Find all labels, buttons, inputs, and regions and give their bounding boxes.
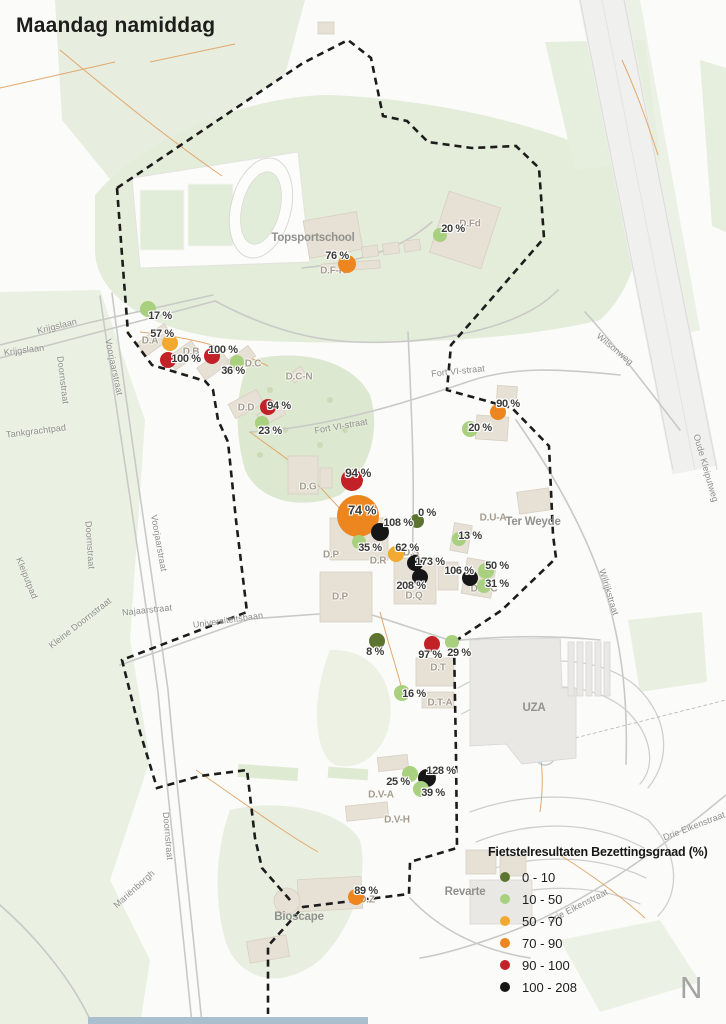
legend-item-label: 0 - 10 — [522, 870, 555, 885]
page-title: Maandag namiddag — [16, 14, 215, 38]
legend-item-label: 90 - 100 — [522, 958, 570, 973]
legend-color-dot — [500, 916, 510, 926]
legend-item: 10 - 50 — [488, 888, 724, 910]
legend-item-label: 100 - 208 — [522, 980, 577, 995]
legend-color-dot — [500, 960, 510, 970]
legend-item-label: 70 - 90 — [522, 936, 562, 951]
legend-item: 0 - 10 — [488, 866, 724, 888]
water-strip — [88, 1017, 368, 1024]
legend-color-dot — [500, 894, 510, 904]
legend-item-label: 50 - 70 — [522, 914, 562, 929]
legend-title: Fietstelresultaten Bezettingsgraad (%) — [488, 845, 724, 859]
north-indicator: N — [680, 970, 702, 1006]
legend-item: 50 - 70 — [488, 910, 724, 932]
map-page: KrijgslaanKrijgslaanDoornstraatVoorjaars… — [0, 0, 726, 1024]
legend-color-dot — [500, 982, 510, 992]
legend-color-dot — [500, 872, 510, 882]
legend-item: 70 - 90 — [488, 932, 724, 954]
legend-color-dot — [500, 938, 510, 948]
legend-item-label: 10 - 50 — [522, 892, 562, 907]
